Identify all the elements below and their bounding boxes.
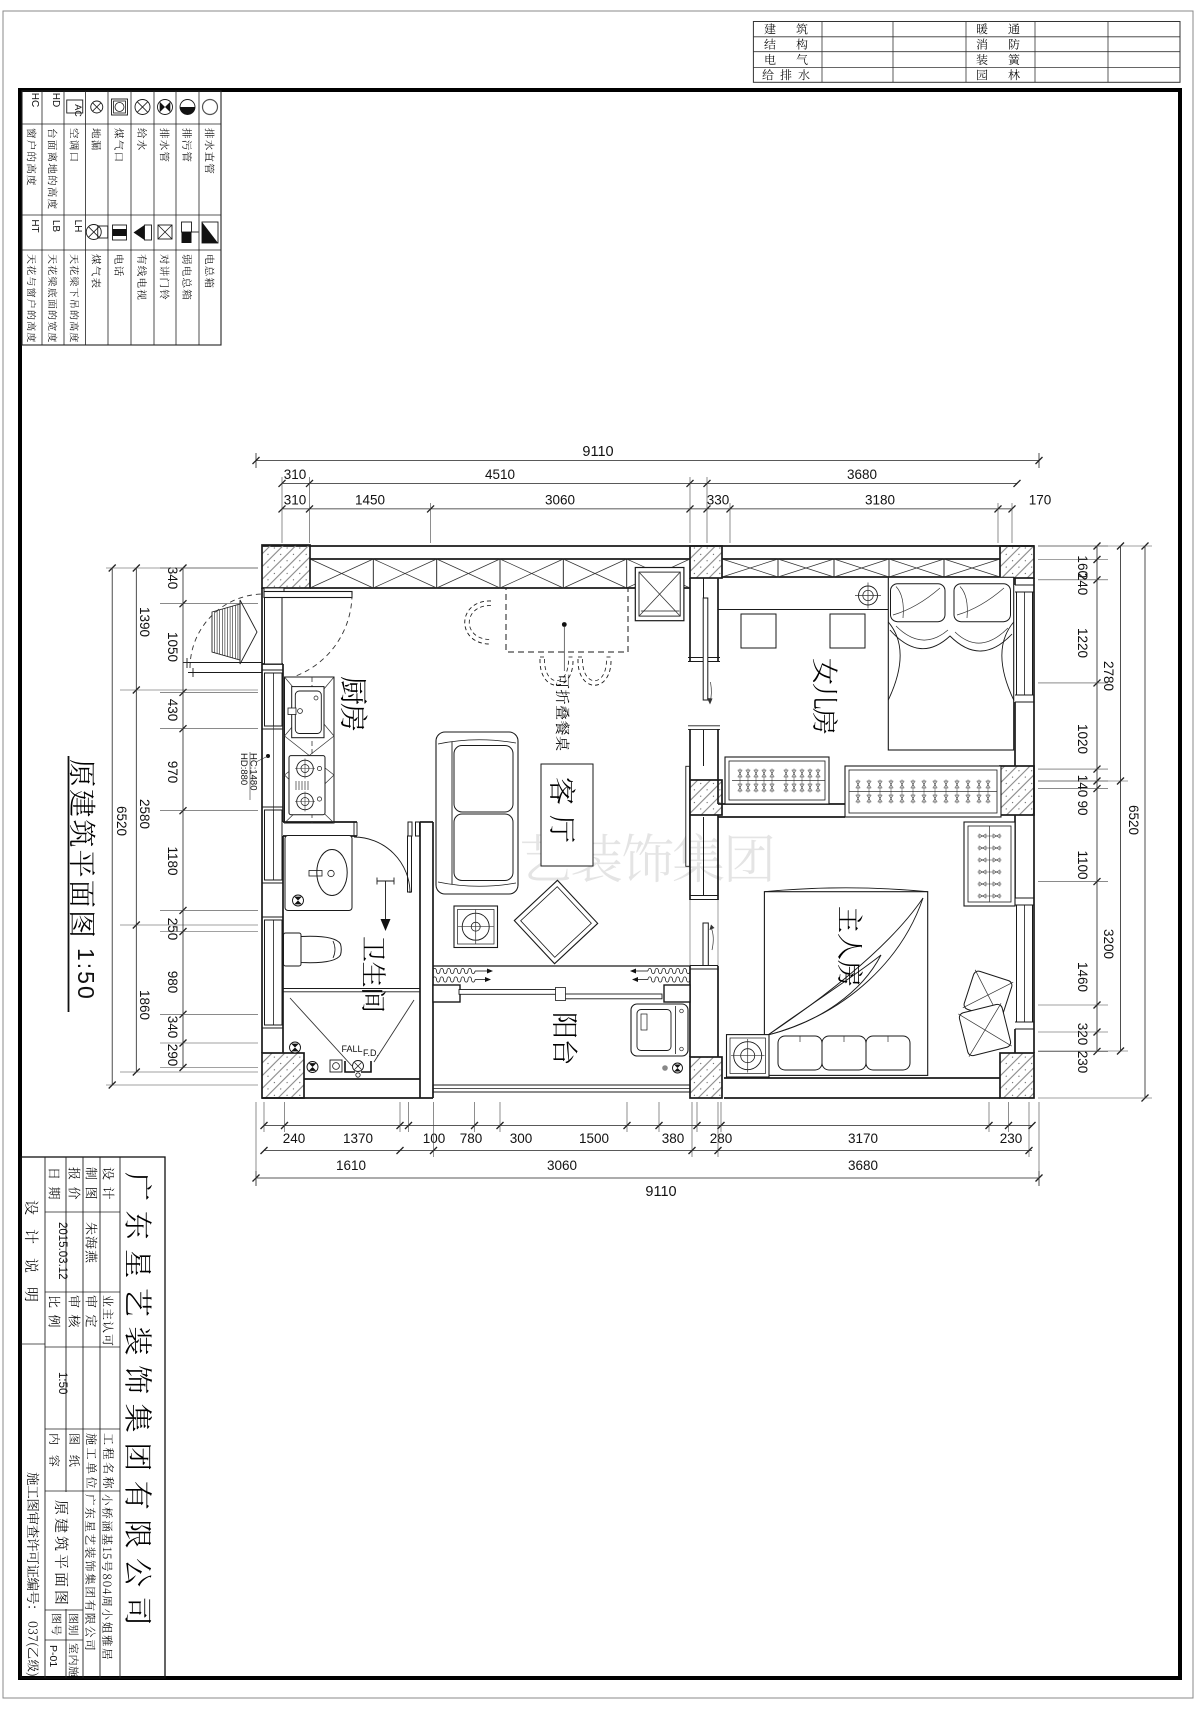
svg-text:1390: 1390 <box>137 607 152 637</box>
svg-text:140: 140 <box>1075 775 1090 798</box>
svg-text:LB: LB <box>50 220 61 233</box>
svg-text:FALL: FALL <box>341 1044 362 1054</box>
svg-text:1180: 1180 <box>165 846 180 875</box>
svg-text:3680: 3680 <box>848 1158 878 1173</box>
svg-text:9110: 9110 <box>582 444 613 460</box>
svg-text:310: 310 <box>284 467 307 482</box>
svg-text:AC: AC <box>73 104 83 117</box>
svg-text:2015.03.12: 2015.03.12 <box>56 1222 68 1280</box>
svg-text:1860: 1860 <box>137 990 152 1020</box>
svg-text:300: 300 <box>510 1131 533 1146</box>
svg-text:6520: 6520 <box>114 806 129 836</box>
svg-text:3680: 3680 <box>847 467 877 482</box>
svg-text:280: 280 <box>710 1131 733 1146</box>
svg-text:340: 340 <box>165 567 180 590</box>
svg-text:1:50: 1:50 <box>73 948 99 1001</box>
svg-text:320: 320 <box>1075 1023 1090 1046</box>
svg-text:240: 240 <box>1075 573 1090 596</box>
svg-text:1370: 1370 <box>343 1131 373 1146</box>
svg-text:6520: 6520 <box>1126 805 1141 835</box>
svg-text:380: 380 <box>662 1131 685 1146</box>
svg-text:1220: 1220 <box>1075 628 1090 658</box>
svg-text:1450: 1450 <box>355 493 385 508</box>
svg-text:3200: 3200 <box>1101 929 1116 959</box>
svg-text:170: 170 <box>1029 493 1052 508</box>
svg-text:3180: 3180 <box>865 493 895 508</box>
svg-text:2580: 2580 <box>137 799 152 829</box>
svg-text:970: 970 <box>165 761 180 784</box>
svg-text:3170: 3170 <box>848 1131 878 1146</box>
svg-text:1:50: 1:50 <box>56 1372 68 1394</box>
svg-text:230: 230 <box>1075 1051 1090 1074</box>
svg-text:2780: 2780 <box>1101 661 1116 691</box>
svg-text:240: 240 <box>283 1131 306 1146</box>
svg-text:1020: 1020 <box>1075 724 1090 754</box>
svg-text:HC:1480: HC:1480 <box>248 753 259 791</box>
svg-text:980: 980 <box>165 971 180 994</box>
svg-text:1100: 1100 <box>1075 850 1090 879</box>
svg-text:1500: 1500 <box>579 1131 609 1146</box>
svg-text:230: 230 <box>1000 1131 1023 1146</box>
svg-text:HD:880: HD:880 <box>238 753 249 785</box>
svg-text:780: 780 <box>460 1131 483 1146</box>
svg-text:430: 430 <box>165 699 180 722</box>
svg-text:3060: 3060 <box>545 493 575 508</box>
svg-text:100: 100 <box>423 1131 446 1146</box>
svg-text:HT: HT <box>29 219 40 232</box>
svg-text:4510: 4510 <box>485 467 515 482</box>
svg-text:HC: HC <box>29 93 40 107</box>
svg-text:F.D.: F.D. <box>363 1048 379 1058</box>
svg-text:P-01: P-01 <box>47 1645 59 1667</box>
svg-text:HD: HD <box>50 93 61 107</box>
svg-text:1460: 1460 <box>1075 962 1090 992</box>
svg-text:1610: 1610 <box>336 1158 366 1173</box>
svg-text:LH: LH <box>72 220 83 233</box>
svg-text:340: 340 <box>165 1016 180 1039</box>
svg-text:330: 330 <box>707 493 730 508</box>
svg-text:290: 290 <box>165 1044 180 1067</box>
svg-text:1050: 1050 <box>165 632 180 662</box>
svg-text:9110: 9110 <box>645 1184 676 1200</box>
svg-text:310: 310 <box>284 493 307 508</box>
svg-text:3060: 3060 <box>547 1158 577 1173</box>
svg-text:250: 250 <box>165 918 180 941</box>
svg-text:90: 90 <box>1075 800 1090 815</box>
